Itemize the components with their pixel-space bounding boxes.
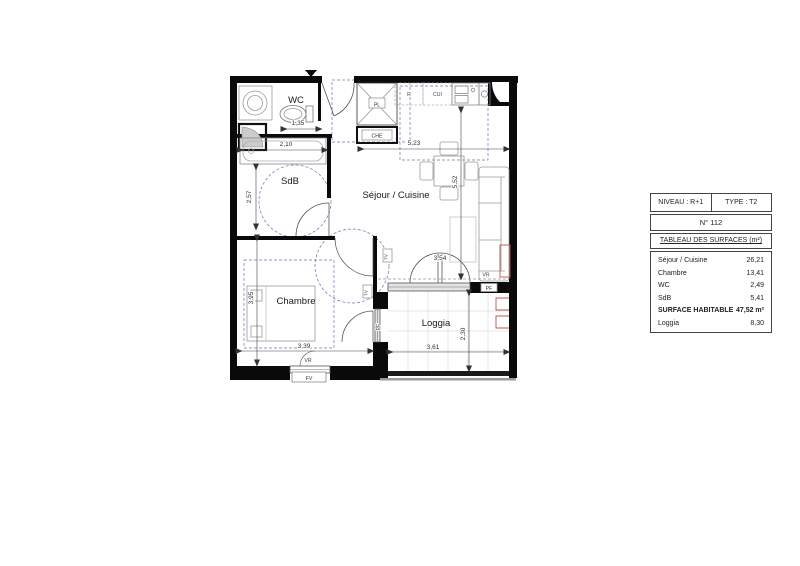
surface-annex-row: Loggia 8,30 xyxy=(651,318,771,331)
dim-sdb-depth: 2,57 xyxy=(246,190,253,203)
type-label: TYPE : T2 xyxy=(712,194,772,211)
wall-bottom-mid xyxy=(330,366,388,380)
row-value: 26,21 xyxy=(746,255,764,268)
floor-plan: WC SdB Séjour / Cuisine Chambre Loggia 1… xyxy=(228,70,520,390)
floor-plan-drawing: WC SdB Séjour / Cuisine Chambre Loggia 1… xyxy=(228,70,520,390)
room-label-sejour: Séjour / Cuisine xyxy=(362,190,429,201)
dim-sejour-width: 5,23 xyxy=(408,140,421,147)
room-label-sdb: SdB xyxy=(281,176,299,187)
dim-loggia-width: 3,61 xyxy=(427,344,440,351)
wall-sdb-right xyxy=(327,134,331,198)
tag-fv-window: FV xyxy=(306,376,313,382)
total-value: 47,52 m² xyxy=(736,305,764,318)
row-label: WC xyxy=(658,280,670,293)
washing-machine-icon xyxy=(239,86,272,120)
wall-wc-right xyxy=(318,83,321,121)
loggia-outer-ledge xyxy=(380,378,516,381)
wall-bottom-left xyxy=(230,366,290,380)
dim-loggia-depth: 2,30 xyxy=(460,327,467,340)
tag-tv-1: TV xyxy=(384,254,389,260)
total-label: SURFACE HABITABLE xyxy=(658,305,733,318)
radiator-icon xyxy=(500,245,510,277)
tag-closet: PL xyxy=(374,103,380,109)
row-value: 2,49 xyxy=(750,280,764,293)
row-label: SdB xyxy=(658,293,671,306)
surface-row: Séjour / Cuisine 26,21 xyxy=(651,255,771,268)
dim-chambre-depth: 3,95 xyxy=(248,291,255,304)
annex-value: 8,30 xyxy=(750,318,764,331)
walls xyxy=(230,70,518,381)
entry-marker xyxy=(305,70,317,77)
surface-row: SdB 5,41 xyxy=(651,293,771,306)
chambre-loggia-door xyxy=(342,311,373,342)
tag-fridge: R xyxy=(407,92,411,98)
tag-cooker: CUI xyxy=(433,92,442,98)
row-label: Séjour / Cuisine xyxy=(658,255,707,268)
tag-pf-loggia: PF xyxy=(486,286,493,292)
level-label: NIVEAU : R+1 xyxy=(651,194,712,211)
dim-bay-width: 3,54 xyxy=(434,255,447,262)
entrance-door xyxy=(322,83,354,116)
table-title-box: TABLEAU DES SURFACES (m²) xyxy=(650,233,772,249)
furniture xyxy=(239,83,510,382)
sdb-door xyxy=(296,203,329,236)
sofa-icon xyxy=(479,167,509,281)
surface-rows: Séjour / Cuisine 26,21 Chambre 13,41 WC … xyxy=(650,251,772,333)
room-label-wc: WC xyxy=(288,95,304,106)
room-label-loggia: Loggia xyxy=(422,318,451,329)
row-value: 5,41 xyxy=(750,293,764,306)
surface-row: Chambre 13,41 xyxy=(651,268,771,281)
wall-chambre-loggia-upper xyxy=(373,292,388,309)
unit-number: N° 112 xyxy=(650,214,772,231)
row-value: 13,41 xyxy=(746,268,764,281)
windows xyxy=(290,279,509,373)
room-label-chambre: Chambre xyxy=(276,296,315,307)
annex-label: Loggia xyxy=(658,318,679,331)
rug-icon xyxy=(450,217,476,262)
surface-total-row: SURFACE HABITABLE 47,52 m² xyxy=(651,305,771,318)
wall-chambre-right xyxy=(373,236,377,293)
tag-tv-2: TV xyxy=(364,290,369,296)
dim-bath: 2,10 xyxy=(280,141,293,148)
loggia-downpipe-icon xyxy=(496,298,509,328)
surface-row: WC 2,49 xyxy=(651,280,771,293)
wall-left xyxy=(230,76,237,380)
loggia-tile-grid xyxy=(388,291,509,371)
wall-chambre-top xyxy=(237,236,335,240)
dim-sejour-depth: 5,52 xyxy=(452,175,459,188)
wall-chambre-loggia-lower xyxy=(373,342,388,368)
tag-water-heater: CHE xyxy=(372,134,383,140)
wall-top-left xyxy=(230,76,322,83)
sink-icon xyxy=(452,83,479,105)
dim-chambre-width: 3,39 xyxy=(298,343,311,350)
page-background: WC SdB Séjour / Cuisine Chambre Loggia 1… xyxy=(0,0,800,566)
loggia-edge xyxy=(388,371,509,376)
table-title: TABLEAU DES SURFACES (m²) xyxy=(660,237,762,244)
surface-table-panel: NIVEAU : R+1 TYPE : T2 N° 112 TABLEAU DE… xyxy=(650,193,772,335)
tag-vr-window: VR xyxy=(304,358,311,364)
tag-pf-chambre: PF xyxy=(376,324,382,331)
wall-right xyxy=(509,76,517,378)
chambre-door xyxy=(335,238,373,276)
guide-dashes xyxy=(244,80,488,348)
dim-wc-width: 1,35 xyxy=(292,120,305,127)
tag-vr-loggia: VR xyxy=(482,273,489,279)
turning-circle-chambre xyxy=(315,229,389,303)
row-label: Chambre xyxy=(658,268,687,281)
panel-header: NIVEAU : R+1 TYPE : T2 xyxy=(650,193,772,212)
